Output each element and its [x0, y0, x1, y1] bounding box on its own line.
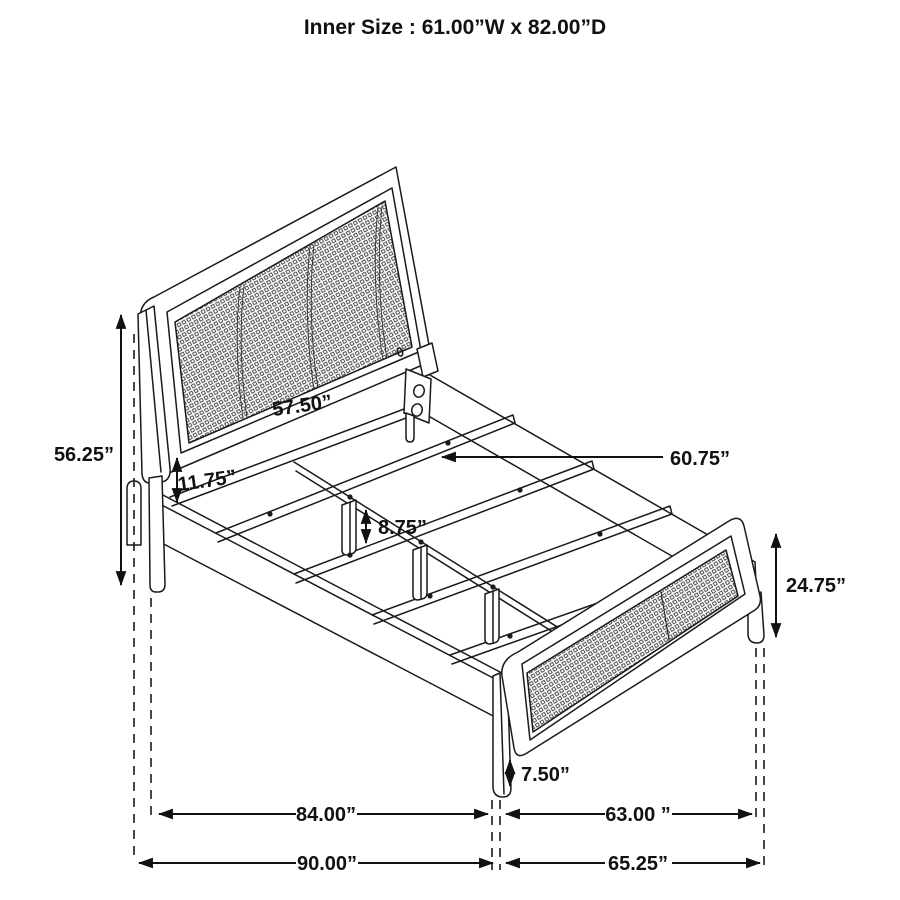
bed-dimension-diagram: Inner Size : 61.00”W x 82.00”D 56.25” 57…: [0, 0, 900, 900]
label-leg-height: 8.75”: [378, 517, 427, 539]
label-headboard-height: 56.25”: [54, 444, 114, 466]
footboard: [493, 518, 764, 797]
front-side-rail: [156, 502, 497, 718]
diagram-title: Inner Size : 61.00”W x 82.00”D: [304, 16, 606, 39]
support-leg: [485, 589, 499, 644]
label-inside-length: 84.00”: [296, 804, 356, 826]
diagram-svg: Inner Size : 61.00”W x 82.00”D 56.25” 57…: [0, 0, 900, 900]
headboard-right-post: [417, 343, 438, 377]
front-side-rail-top-face: [156, 494, 500, 672]
label-foot-overall-width: 65.25”: [608, 853, 668, 875]
label-slat-length: 60.75”: [670, 448, 730, 470]
headboard-front-leg: [149, 476, 165, 592]
label-headboard-gap: 11.75”: [176, 466, 237, 496]
label-foot-inside-width: 63.00 ”: [605, 804, 671, 826]
support-leg: [342, 500, 356, 555]
support-leg: [413, 545, 427, 600]
bracket-leg: [406, 413, 414, 442]
label-footboard-height: 24.75”: [786, 575, 846, 597]
label-footboard-leg: 7.50”: [521, 764, 570, 786]
label-overall-length: 90.00”: [297, 853, 357, 875]
